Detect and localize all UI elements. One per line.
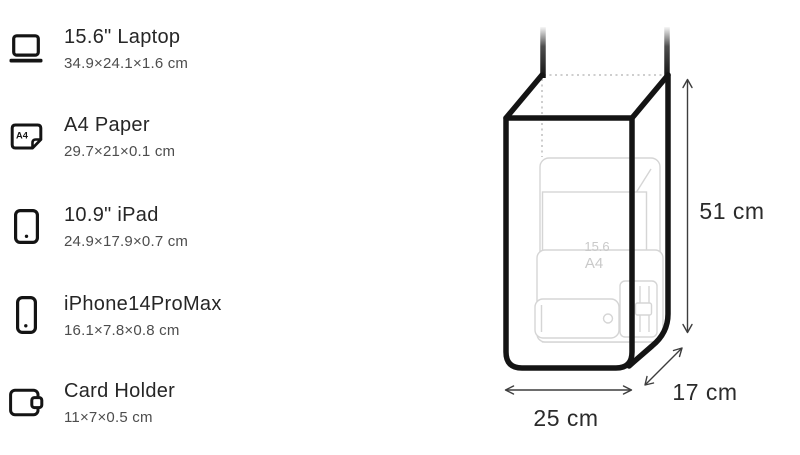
packed-iphone-outline <box>535 299 619 338</box>
packed-laptop-label: 15.6 <box>584 239 609 254</box>
packed-items: 15.6 A4 <box>535 158 663 342</box>
packed-a4-label: A4 <box>585 255 603 272</box>
bag-top-left-edge <box>506 75 542 118</box>
height-arrow <box>683 80 692 333</box>
bag-straps <box>543 27 667 78</box>
packed-card-holder-outline <box>620 281 657 337</box>
width-arrow <box>506 386 632 394</box>
bag-capacity-infographic: 15.6" Laptop 34.9×24.1×1.6 cm A4 A4 Pape… <box>0 0 800 455</box>
bag-3d-diagram: 15.6 A4 <box>0 0 800 455</box>
depth-dimension-label: 17 cm <box>672 379 737 405</box>
height-dimension-label: 51 cm <box>699 198 764 224</box>
width-dimension-label: 25 cm <box>533 405 598 431</box>
bag-top-right-edge <box>632 75 668 118</box>
